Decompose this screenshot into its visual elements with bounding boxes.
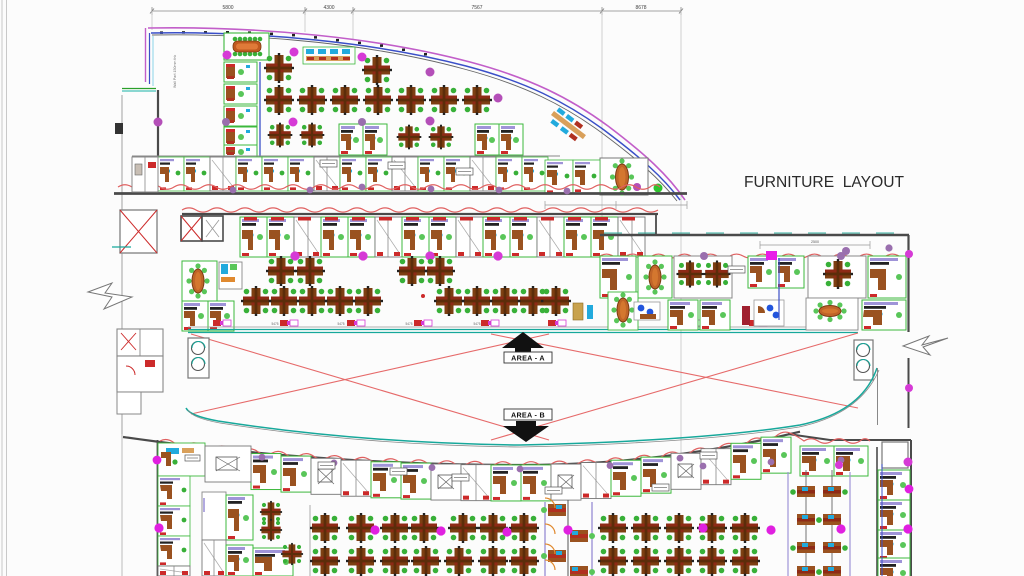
svg-text:5475: 5475 bbox=[271, 322, 278, 326]
svg-text:5475: 5475 bbox=[473, 322, 480, 326]
svg-text:Wall Part 150mm thk: Wall Part 150mm thk bbox=[173, 55, 177, 88]
svg-text:4300: 4300 bbox=[323, 5, 334, 11]
svg-text:FURNITURE LAYOUT: FURNITURE LAYOUT bbox=[744, 174, 905, 191]
svg-text:AREA - B: AREA - B bbox=[511, 411, 545, 420]
svg-text:2500: 2500 bbox=[811, 240, 819, 244]
svg-text:5475: 5475 bbox=[337, 322, 344, 326]
svg-text:5475: 5475 bbox=[405, 322, 412, 326]
svg-text:7567: 7567 bbox=[471, 5, 482, 11]
svg-text:5800: 5800 bbox=[222, 5, 233, 11]
svg-text:AREA - A: AREA - A bbox=[511, 354, 545, 363]
svg-text:8678: 8678 bbox=[635, 5, 646, 11]
